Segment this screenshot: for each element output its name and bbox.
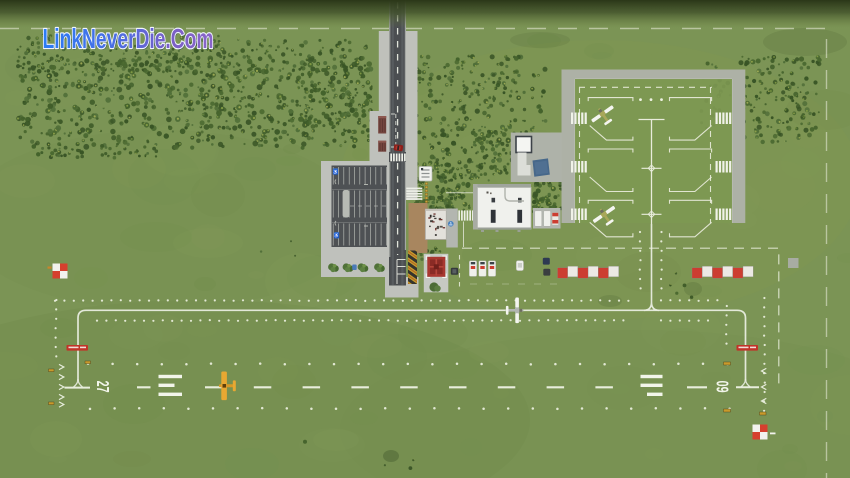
svg-text:27: 27 — [92, 381, 111, 393]
svg-text:LinkNeverDie.Com: LinkNeverDie.Com — [43, 23, 214, 54]
svg-text:♿: ♿ — [333, 168, 339, 175]
svg-text:♿: ♿ — [334, 232, 340, 239]
svg-text:09: 09 — [712, 381, 731, 393]
